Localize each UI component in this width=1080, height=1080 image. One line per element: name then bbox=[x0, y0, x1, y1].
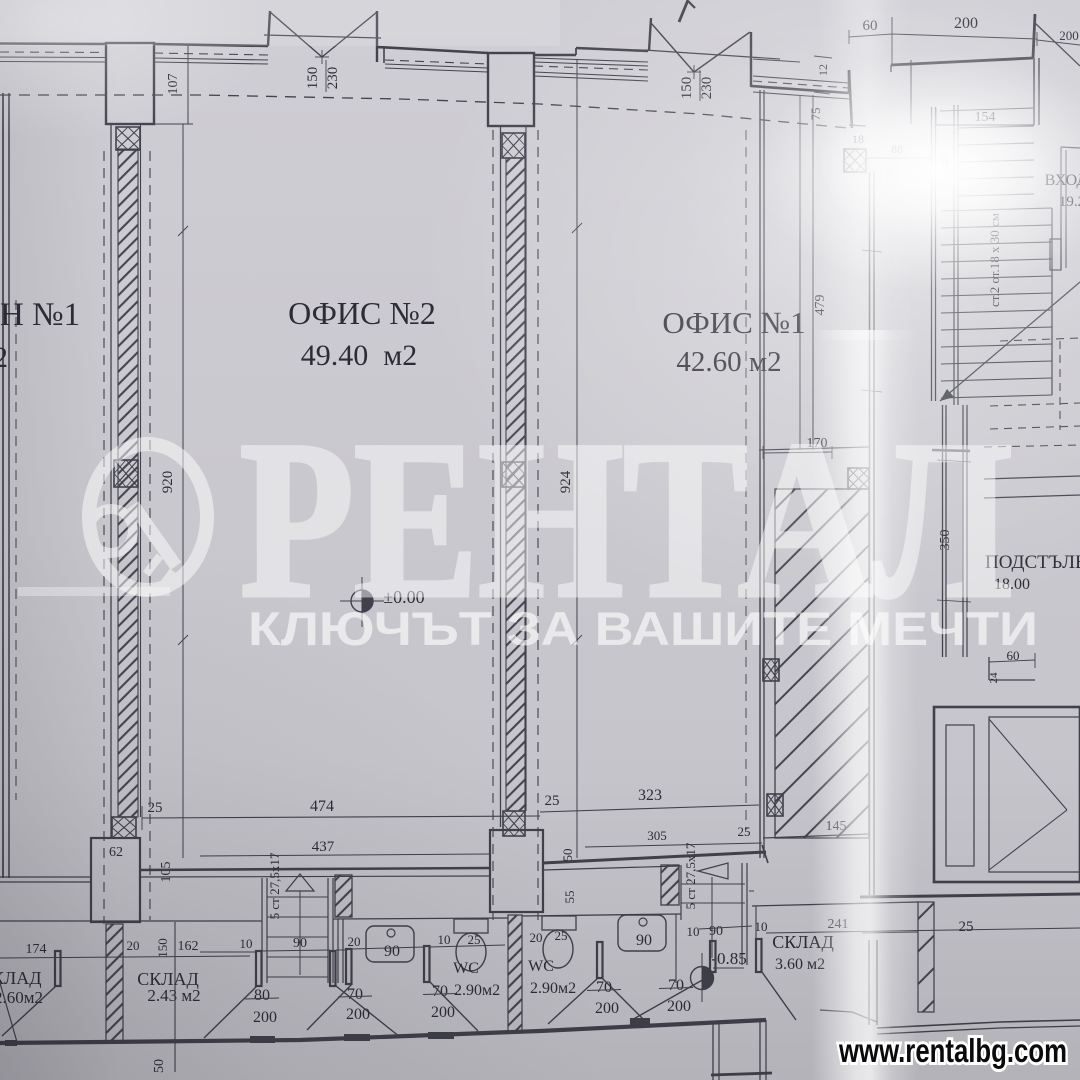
svg-text:www.rentalbg.com: www.rentalbg.com bbox=[838, 1032, 1067, 1069]
svg-text:КЛЮЧЪТ ЗА ВАШИТЕ МЕЧТИ: КЛЮЧЪТ ЗА ВАШИТЕ МЕЧТИ bbox=[248, 602, 1038, 655]
